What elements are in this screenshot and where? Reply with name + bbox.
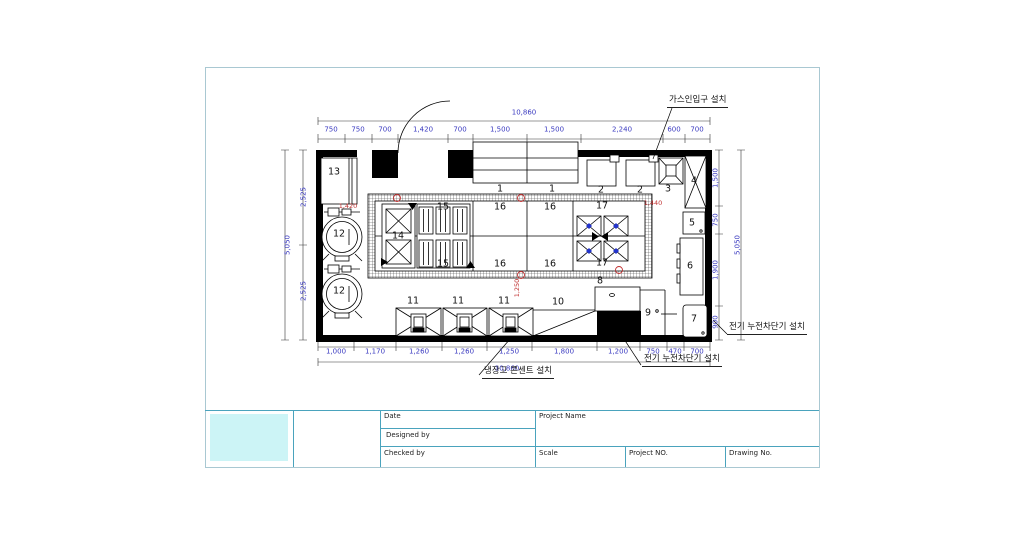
fridge-outlet-annotation: 냉장고 콘센트 설치 [482, 367, 554, 379]
item-number-label: 7 [691, 314, 697, 324]
tb-checked-by-label: Checked by [384, 450, 425, 457]
item-number-label: 2 [598, 185, 604, 195]
dimension-value: 2,525 [301, 281, 308, 301]
item-number-label: 13 [328, 167, 340, 177]
dimension-value: 700 [378, 127, 391, 134]
dim-top-total: 10,860 [512, 110, 537, 117]
dim-left-total: 5,050 [285, 235, 292, 255]
dimension-value: 700 [453, 127, 466, 134]
item-number-label: 12 [333, 229, 345, 239]
item-number-label: 10 [552, 297, 564, 307]
item-number-label: 11 [452, 296, 464, 306]
tb-date-label: Date [384, 413, 401, 420]
item-number-label: 14 [392, 231, 404, 241]
item-number-label: 6 [687, 261, 693, 271]
company-logo-area [210, 414, 288, 461]
dimension-value: 1,000 [326, 349, 346, 356]
dimension-value: 1,800 [554, 349, 574, 356]
tb-line [380, 410, 381, 467]
tb-drawing-no-label: Drawing No. [729, 450, 772, 457]
tb-project-no-label: Project NO. [629, 450, 668, 457]
dimension-value: 1,500 [544, 127, 564, 134]
tb-line [725, 446, 726, 467]
tb-line [625, 446, 626, 467]
dimension-value: 2,525 [301, 187, 308, 207]
dimension-value: 1,900 [713, 260, 720, 280]
dimension-value: 750 [324, 127, 337, 134]
dimension-value: 1,500 [490, 127, 510, 134]
item-number-label: 9 [645, 308, 651, 318]
item-number-label: 17 [596, 201, 608, 211]
item-number-label: 1 [549, 184, 555, 194]
item-number-label: 8 [597, 276, 603, 286]
red-dimension-note: 1,250 [514, 279, 521, 298]
item-number-label: 15 [437, 202, 449, 212]
item-number-label: 16 [494, 202, 506, 212]
item-number-label: 17 [596, 258, 608, 268]
breaker-annotation-bottom: 전기 누전차단기 설치 [642, 355, 722, 367]
tb-line [205, 410, 819, 411]
item-number-label: 2 [637, 185, 643, 195]
tb-line [293, 410, 294, 467]
tb-line [380, 428, 535, 429]
dimension-value: 2,240 [612, 127, 632, 134]
tb-line [535, 410, 536, 467]
item-number-label: 15 [437, 259, 449, 269]
item-number-label: 4 [691, 176, 697, 186]
dimension-value: 1,250 [499, 349, 519, 356]
dimension-value: 700 [690, 127, 703, 134]
item-number-label: 11 [498, 296, 510, 306]
dim-right-total: 5,050 [735, 235, 742, 255]
item-number-label: 1 [497, 184, 503, 194]
red-dimension-note: 1,420 [339, 203, 358, 210]
dimension-value: 1,170 [365, 349, 385, 356]
dimension-value: 750 [351, 127, 364, 134]
item-number-label: 5 [689, 218, 695, 228]
breaker-annotation-right: 전기 누전차단기 설치 [727, 323, 807, 335]
item-number-label: 16 [544, 202, 556, 212]
floorplan-linework [0, 0, 1024, 534]
dimension-value: 1,260 [409, 349, 429, 356]
item-number-label: 16 [544, 259, 556, 269]
dimension-value: 1,500 [713, 168, 720, 188]
item-number-label: 16 [494, 259, 506, 269]
drawing-sheet: 1312121415161617151616171122345678910111… [0, 0, 1024, 534]
item-number-label: 11 [407, 296, 419, 306]
tb-line [380, 446, 819, 447]
tb-scale-label: Scale [539, 450, 558, 457]
red-dimension-note: 1,440 [644, 200, 663, 207]
dimension-value: 1,200 [608, 349, 628, 356]
dimension-value: 750 [713, 213, 720, 226]
dimension-value: 1,260 [454, 349, 474, 356]
tb-designed-by-label: Designed by [386, 432, 430, 439]
gas-inlet-annotation: 가스인입구 설치 [667, 96, 728, 108]
tb-project-name-label: Project Name [539, 413, 586, 420]
item-number-label: 12 [333, 286, 345, 296]
dimension-value: 600 [667, 127, 680, 134]
item-number-label: 3 [665, 184, 671, 194]
dimension-value: 900 [713, 315, 720, 328]
dimension-value: 1,420 [413, 127, 433, 134]
